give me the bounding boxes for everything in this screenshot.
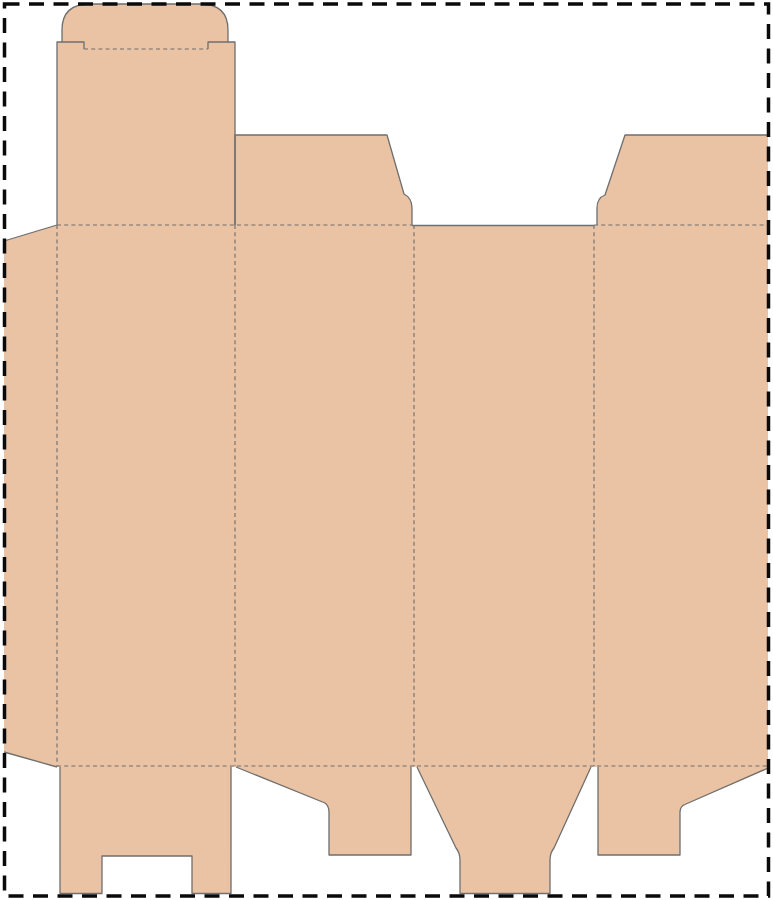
carton-blank-shape[interactable] — [4, 4, 768, 894]
dieline-drawing — [0, 0, 773, 900]
dieline-artboard — [0, 0, 773, 900]
